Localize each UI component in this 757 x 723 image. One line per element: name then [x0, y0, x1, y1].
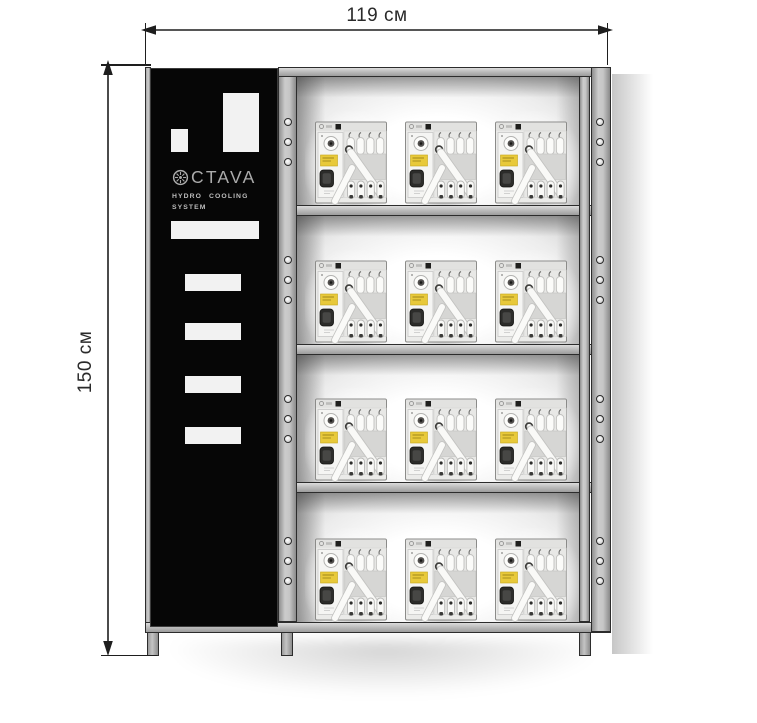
rack-foot-middle — [281, 632, 293, 656]
impeller-gear-icon — [172, 169, 189, 186]
cooling-unit — [404, 532, 480, 622]
mounting-hole — [596, 395, 604, 403]
width-extension-line-left — [145, 23, 146, 65]
cooling-unit — [314, 115, 390, 205]
shelf-board — [278, 205, 611, 216]
cooling-unit — [314, 392, 390, 482]
mounting-hole — [284, 158, 292, 166]
brand-panel: CTAVA HYDRO COOLING SYSTEM — [150, 68, 278, 627]
mounting-hole — [284, 276, 292, 284]
mounting-hole — [284, 395, 292, 403]
panel-vent-cutout — [185, 274, 241, 291]
hydro-cooling-rack-diagram: 119 см 150 см — [0, 0, 757, 723]
brand-logo: CTAVA HYDRO COOLING SYSTEM — [172, 167, 256, 213]
panel-vent-cutout — [185, 323, 241, 340]
mounting-hole — [284, 577, 292, 585]
rack-post-inner-right — [579, 76, 590, 622]
mounting-hole — [596, 256, 604, 264]
panel-vent-cutout — [185, 376, 241, 393]
cooling-unit — [494, 532, 570, 622]
cooling-unit — [404, 392, 480, 482]
mounting-hole — [596, 276, 604, 284]
mounting-hole — [596, 577, 604, 585]
cooling-unit — [494, 392, 570, 482]
shelf-board — [278, 482, 611, 493]
brand-wordmark: CTAVA — [191, 167, 256, 188]
cooling-unit — [494, 254, 570, 344]
panel-vent-cutout — [171, 129, 188, 152]
cooling-unit — [404, 115, 480, 205]
width-extension-line-right — [607, 23, 608, 65]
cooling-unit — [404, 254, 480, 344]
height-dimension-arrow — [100, 59, 116, 657]
rack-post-left — [278, 76, 297, 622]
rack-foot-left — [147, 632, 159, 656]
rack-foot-right — [579, 632, 591, 656]
mounting-hole — [284, 415, 292, 423]
mounting-hole — [596, 296, 604, 304]
mounting-hole — [596, 557, 604, 565]
height-extension-line-top — [101, 64, 151, 65]
brand-subtitle-line2: SYSTEM — [172, 203, 256, 214]
cast-shadow-right — [612, 74, 660, 654]
height-dimension-label: 150 см — [75, 307, 97, 417]
panel-vent-cutout — [223, 93, 259, 152]
mounting-hole — [284, 118, 292, 126]
panel-vent-cutout — [171, 221, 259, 239]
cooling-unit — [494, 115, 570, 205]
mounting-hole — [284, 435, 292, 443]
mounting-hole — [284, 537, 292, 545]
mounting-hole — [596, 435, 604, 443]
mounting-hole — [596, 138, 604, 146]
rack-post-outer-right — [591, 67, 611, 632]
mounting-hole — [596, 118, 604, 126]
mounting-hole — [284, 138, 292, 146]
cooling-unit — [314, 254, 390, 344]
mounting-hole — [596, 415, 604, 423]
cooling-unit — [314, 532, 390, 622]
mounting-hole — [596, 537, 604, 545]
panel-vent-cutout — [185, 427, 241, 444]
shelf-board — [278, 344, 611, 355]
cast-shadow-ground — [150, 640, 620, 700]
mounting-hole — [284, 296, 292, 304]
mounting-hole — [596, 158, 604, 166]
rack-top-bar — [278, 67, 611, 77]
mounting-hole — [284, 557, 292, 565]
height-extension-line-bottom — [101, 655, 157, 656]
brand-subtitle-line1: HYDRO COOLING — [172, 192, 256, 203]
width-dimension-arrow — [140, 22, 614, 38]
mounting-hole — [284, 256, 292, 264]
